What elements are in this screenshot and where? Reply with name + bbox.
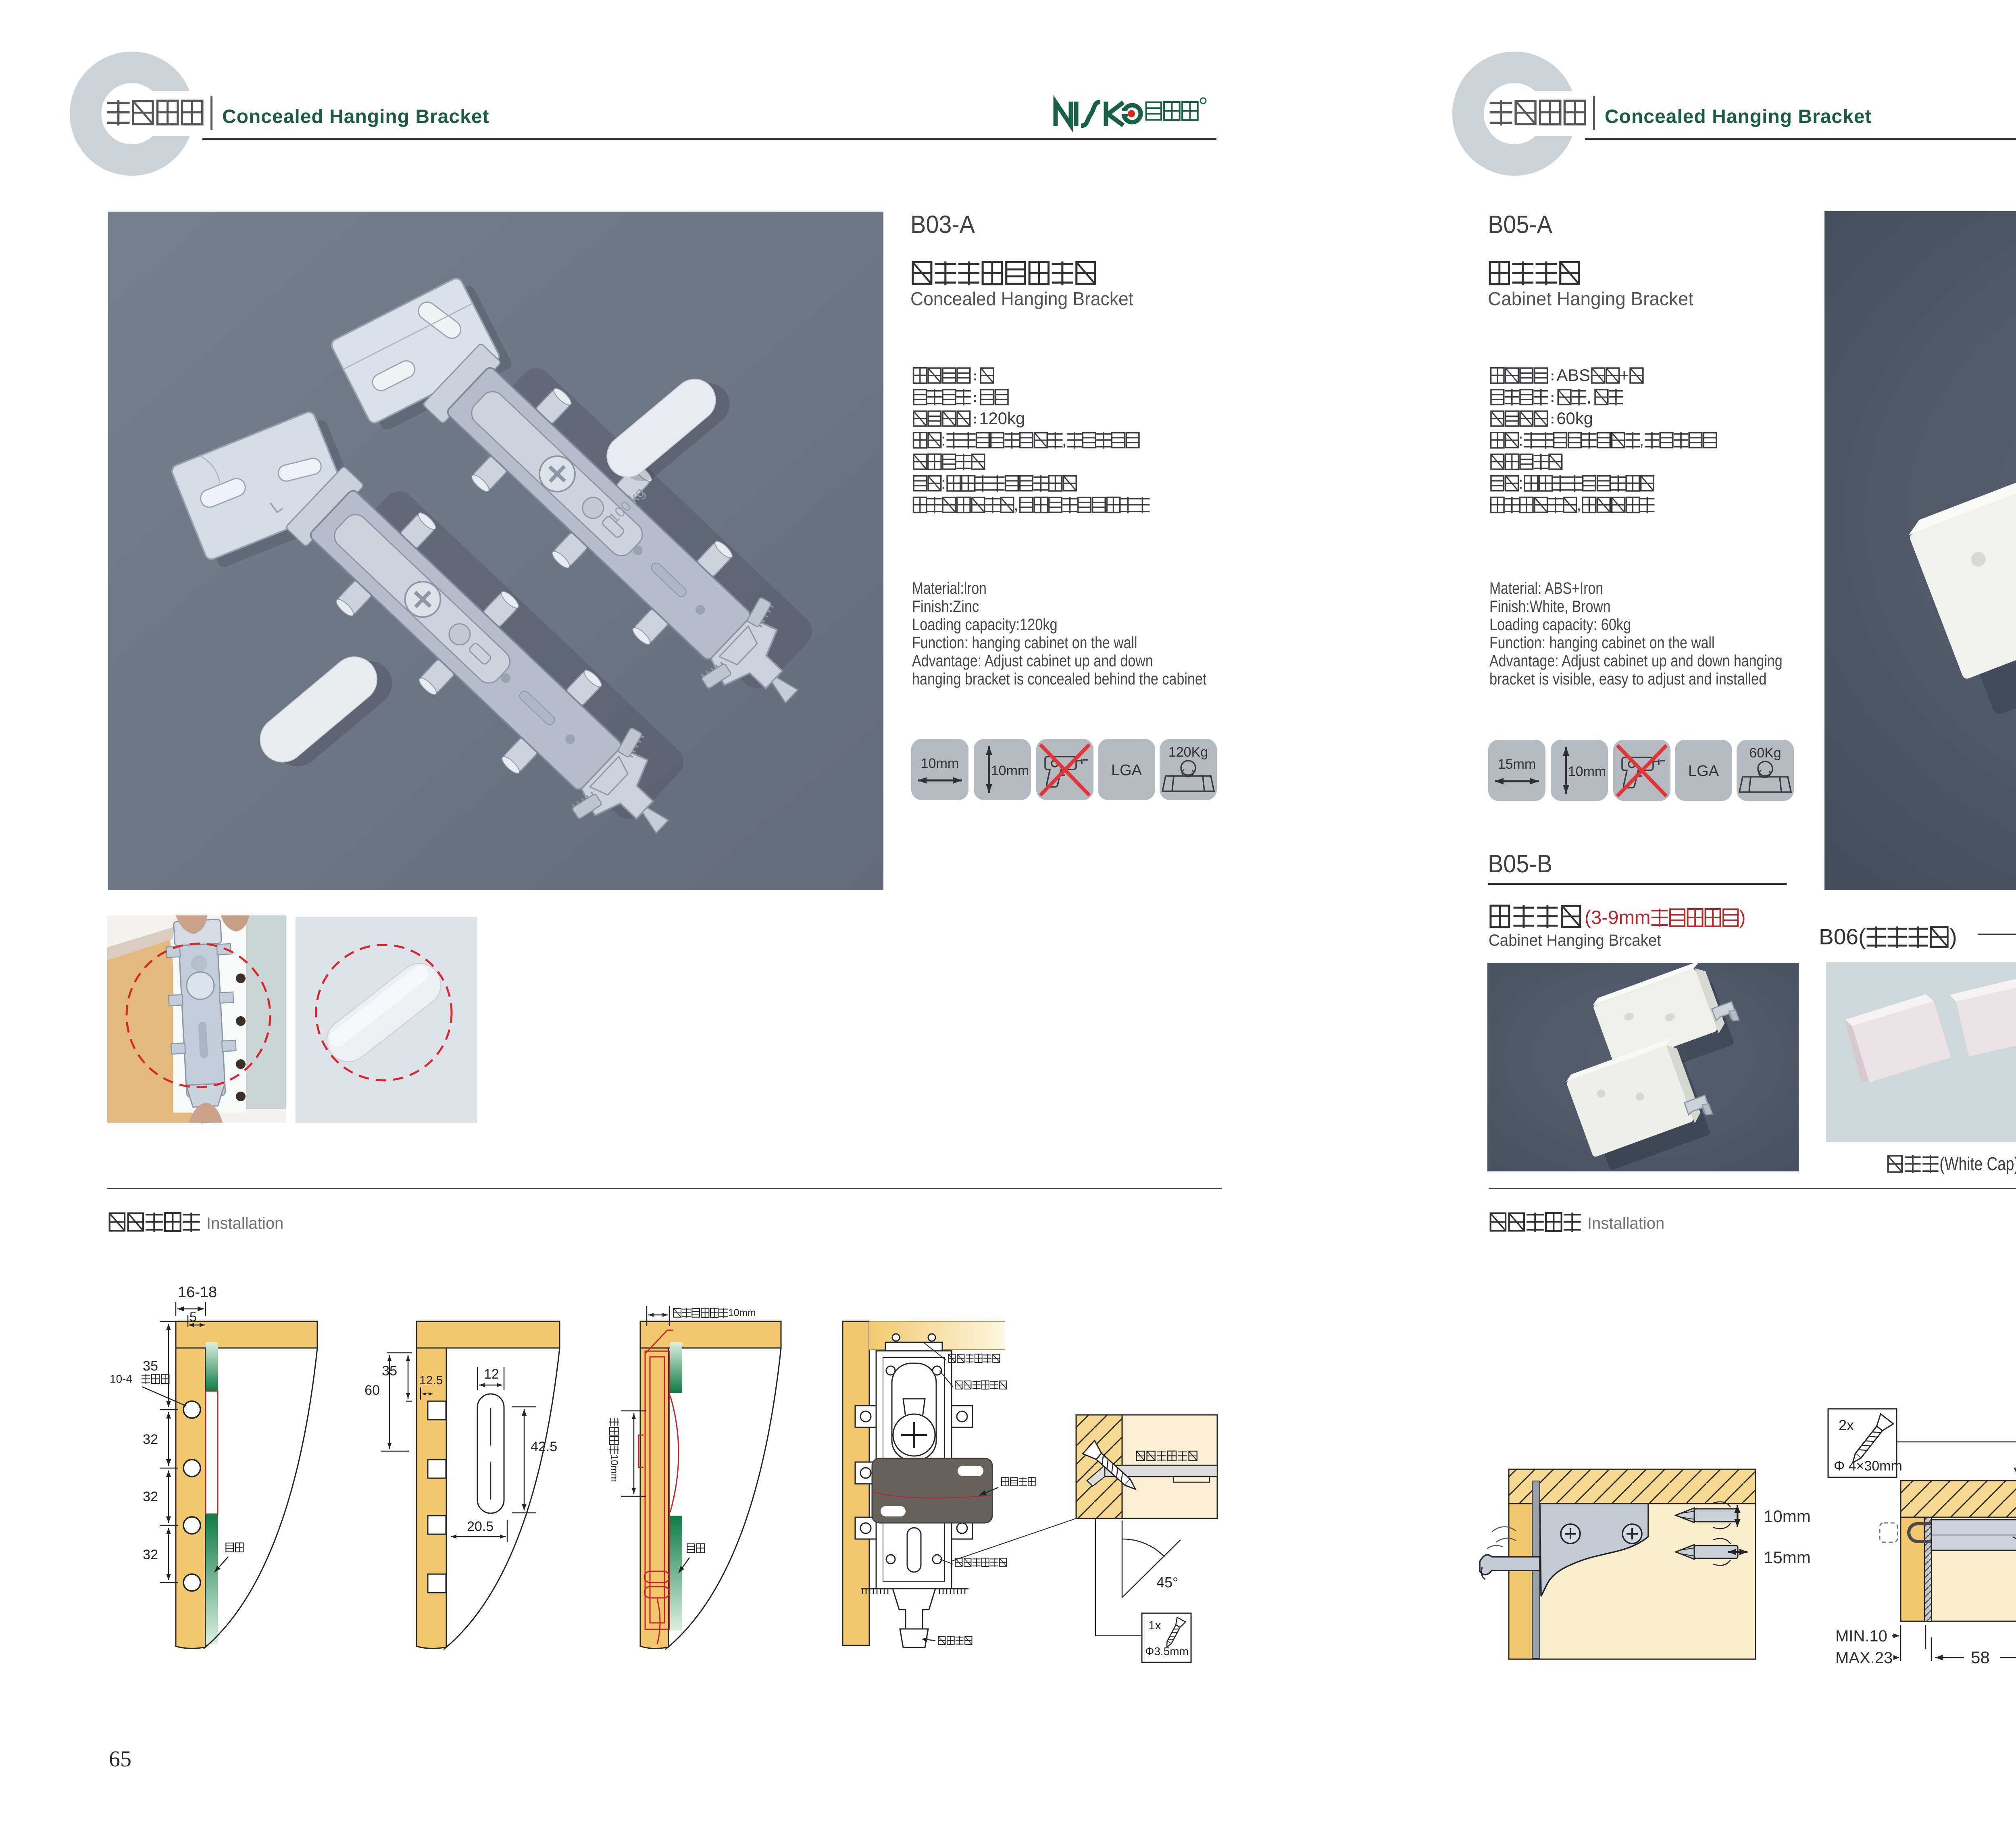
- svg-text:Concealed Hanging Bracket: Concealed Hanging Bracket: [910, 288, 1133, 309]
- svg-text:60Kg: 60Kg: [1749, 745, 1781, 761]
- svg-text:15mm: 15mm: [1764, 1548, 1811, 1567]
- svg-text:Material: ABS+Iron: Material: ABS+Iron: [1489, 579, 1603, 597]
- svg-text:,: ,: [1062, 431, 1067, 449]
- svg-text:60: 60: [364, 1383, 380, 1398]
- svg-text:ABS: ABS: [1556, 366, 1590, 385]
- svg-text:MAX.23: MAX.23: [1835, 1649, 1893, 1667]
- svg-text:Finish:White, Brown: Finish:White, Brown: [1489, 597, 1611, 616]
- svg-text:Cabinet Hanging Brcaket: Cabinet Hanging Brcaket: [1489, 932, 1661, 949]
- svg-text:Finish:Zinc: Finish:Zinc: [912, 597, 979, 616]
- svg-text:65: 65: [109, 1747, 131, 1772]
- svg-text::: :: [1518, 431, 1523, 449]
- svg-text::: :: [941, 474, 946, 493]
- svg-text:): ): [1739, 907, 1746, 928]
- svg-text:,: ,: [1577, 495, 1581, 514]
- svg-text:32: 32: [143, 1547, 158, 1562]
- svg-text:35: 35: [143, 1358, 158, 1374]
- svg-text:B05-B: B05-B: [1488, 850, 1552, 878]
- svg-text:Function: hanging cabinet on t: Function: hanging cabinet on the wall: [912, 633, 1137, 652]
- svg-text:LGA: LGA: [1111, 762, 1142, 779]
- svg-text:B05-A: B05-A: [1488, 211, 1553, 239]
- svg-text:Material:lron: Material:lron: [912, 579, 987, 597]
- svg-text:16-18: 16-18: [178, 1284, 217, 1301]
- svg-text:12.5: 12.5: [419, 1374, 443, 1387]
- svg-text:1x: 1x: [1148, 1619, 1161, 1632]
- svg-text:Advantage: Adjust cabinet up a: Advantage: Adjust cabinet up and down ha…: [1489, 651, 1783, 670]
- svg-text:10mm: 10mm: [728, 1308, 756, 1319]
- svg-text:Function: hanging cabinet on t: Function: hanging cabinet on the wall: [1489, 633, 1714, 652]
- svg-text:hanging bracket is concealed b: hanging bracket is concealed behind the …: [912, 670, 1207, 688]
- svg-text:10mm: 10mm: [608, 1454, 619, 1482]
- svg-text:45°: 45°: [1156, 1574, 1178, 1591]
- svg-text::: :: [941, 431, 946, 449]
- svg-text:42.5: 42.5: [531, 1439, 557, 1454]
- svg-text:MIN.10: MIN.10: [1835, 1627, 1887, 1645]
- svg-text:,: ,: [1639, 431, 1644, 449]
- svg-text:Installation: Installation: [206, 1215, 283, 1232]
- svg-text:Φ 4×30mm: Φ 4×30mm: [1834, 1458, 1902, 1474]
- svg-text:Concealed Hanging Bracket: Concealed Hanging Bracket: [222, 106, 489, 127]
- svg-text:B03-A: B03-A: [910, 211, 975, 239]
- svg-text:Advantage: Adjust cabinet up a: Advantage: Adjust cabinet up and down: [912, 651, 1153, 670]
- svg-text:120kg: 120kg: [979, 409, 1025, 428]
- svg-text:B06(: B06(: [1819, 924, 1866, 949]
- svg-text:Concealed Hanging Bracket: Concealed Hanging Bracket: [1605, 106, 1872, 127]
- svg-text:+: +: [1619, 366, 1629, 385]
- svg-text:(White Cap): (White Cap): [1939, 1153, 2016, 1174]
- svg-text:15mm: 15mm: [1498, 757, 1536, 772]
- svg-text:(3-9mm: (3-9mm: [1585, 907, 1651, 928]
- svg-text:): ): [1949, 924, 1957, 949]
- svg-text:12: 12: [484, 1367, 499, 1382]
- svg-text:32: 32: [143, 1489, 158, 1504]
- svg-text:120Kg: 120Kg: [1168, 745, 1208, 760]
- svg-text:32: 32: [143, 1432, 158, 1447]
- svg-text:Loading capacity: 60kg: Loading capacity: 60kg: [1489, 615, 1631, 634]
- svg-text:20.5: 20.5: [467, 1519, 494, 1534]
- svg-text:Installation: Installation: [1587, 1215, 1664, 1232]
- svg-text:Loading capacity:120kg: Loading capacity:120kg: [912, 615, 1058, 634]
- svg-text:bracket is visible, easy to ad: bracket is visible, easy to adjust and i…: [1489, 670, 1766, 688]
- svg-text:60kg: 60kg: [1556, 409, 1593, 428]
- svg-text:5: 5: [190, 1310, 197, 1324]
- svg-text:Cabinet Hanging Bracket: Cabinet Hanging Bracket: [1488, 288, 1693, 309]
- svg-text:2x: 2x: [1839, 1417, 1854, 1433]
- svg-text:Φ3.5mm: Φ3.5mm: [1145, 1645, 1189, 1658]
- svg-text:10-4: 10-4: [110, 1373, 132, 1385]
- svg-text:10mm: 10mm: [921, 756, 959, 771]
- svg-text:10mm: 10mm: [1568, 764, 1606, 779]
- svg-text:LGA: LGA: [1688, 763, 1719, 780]
- svg-text:58: 58: [1971, 1648, 1990, 1667]
- svg-text:10mm: 10mm: [991, 763, 1029, 778]
- svg-text::: :: [1518, 474, 1523, 493]
- svg-text:10mm: 10mm: [1764, 1507, 1811, 1526]
- svg-text:,: ,: [1014, 495, 1018, 514]
